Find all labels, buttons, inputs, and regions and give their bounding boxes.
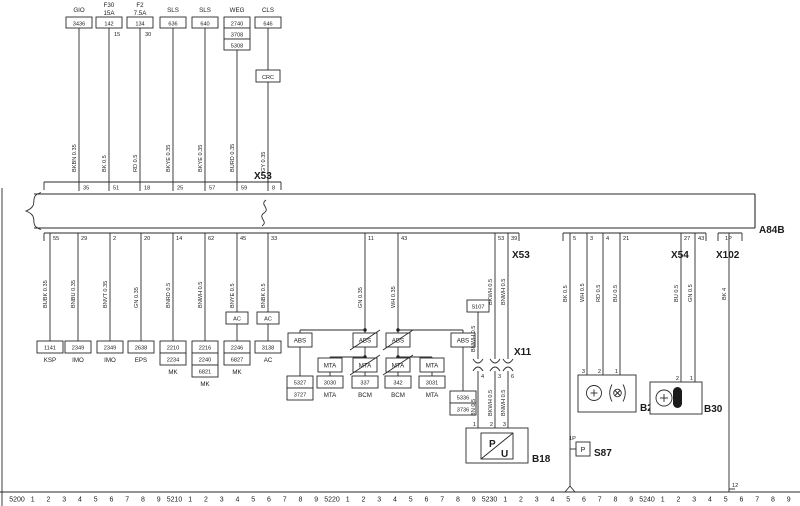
circuit-number: 1141 [44,346,56,352]
connector-x53-bottom: 55 29 2 20 14 62 45 33 11 43 53 39 X53 [44,233,530,261]
wire-label: BU 0.5 [613,285,619,302]
top-circuit-sls-2: SLS 640 BKYE 0.35 57 [192,7,218,192]
switch-symbol: P [581,447,586,454]
component-abbr: KSP [44,357,56,364]
x11-b18-section: BKWH 0.5 BNWH 0.5 S107 BNWH 0.5 X11 4 3 … [466,233,551,465]
component-abbr: BCM [358,392,372,399]
destination-label: ABS [457,338,469,345]
pin-number: 53 [498,236,504,242]
pin-number: 3 [590,236,593,242]
ruler-digit: 2 [47,497,51,504]
circuit-number: 3736 [457,408,469,414]
wire-label: BNRD 0.5 [166,283,172,308]
ruler-digit: 6 [582,497,586,504]
ruler-digit: 5 [251,497,255,504]
pin-number: 1P [569,436,576,442]
bus-break-squiggle [262,200,267,226]
left-circuit-mk-2: BNWH 0.5 2216 2240 6821 MK [192,233,218,388]
pressure-symbol: P [489,439,496,450]
circuit-number: 2240 [199,358,211,364]
bus-break-brace [26,193,41,230]
circuit-number: 3138 [262,346,274,352]
circuit-number: 2216 [199,346,211,352]
ruler-digit: 2 [677,497,681,504]
circuit-number: 3030 [324,381,336,387]
pin-number: 21 [623,236,629,242]
left-circuit-imo-2: BNVT 0.35 2349 IMO [97,233,123,364]
wire-label: BNWH 0.5 [198,282,204,308]
wire-label: BURD 0.35 [230,144,236,172]
pass-through-label: ABS [392,338,404,345]
connector-label: X54 [671,250,689,261]
wire-label: BKYE 0.35 [166,145,172,172]
top-circuit-cls: CLS 646 CRC GY 0.35 8 [255,7,281,192]
wire-label: BNWH 0.5 [471,326,477,352]
component-abbr: BCM [391,392,405,399]
wire-label: GN 0.5 [688,284,694,302]
pin-number: 14 [176,236,182,242]
s87-circuit: BK 0.5 1P P S87 [563,233,612,492]
component-abbr: MK [168,369,178,376]
wire-label: BNBU 0.35 [71,280,77,308]
left-circuit-ac: BNBK 0.5 AC 3138 AC [255,233,281,364]
top-circuit-sls-1: SLS 636 BKYE 0.35 25 [160,7,186,192]
pin-number: 18 [144,186,150,192]
x102-circuit: BK 4 12 [722,233,738,492]
pin-number: 43 [401,236,407,242]
pin-number: 2 [490,422,493,428]
wiring-diagram-page: GIO 3436 BKBN 0.35 35 F30 15A 142 15 BK … [0,0,800,506]
left-circuit-imo-1: BNBU 0.35 2349 IMO [65,233,91,364]
pin-number: 3 [503,422,506,428]
wire-label: BNBK 0.5 [261,283,267,308]
fuse-name: F30 [104,2,115,9]
ruler-digit: 6 [740,497,744,504]
pin-number: 33 [271,236,277,242]
ruler-digit: 5 [724,497,728,504]
circuit-number: 6827 [231,358,243,364]
wire-label: BNWH 0.5 [501,390,507,416]
pass-through-label: MTA [392,363,405,370]
bus-label: A84B [759,225,785,236]
wire-label: BK 4 [722,288,728,300]
ruler-digit: 7 [755,497,759,504]
ruler-digit: 1 [188,497,192,504]
ruler-major: 5240 [639,497,655,504]
ruler-digit: 2 [204,497,208,504]
destination-label: MTA [426,363,439,370]
component-abbr: EPS [135,357,147,364]
circuit-number: 6821 [199,370,211,376]
ruler-digit: 9 [157,497,161,504]
ruler-digit: 8 [614,497,618,504]
connector-plug-icon [473,367,483,371]
ruler-digit: 5 [566,497,570,504]
wire-end-serif [570,486,575,492]
ruler-major: 5220 [324,497,340,504]
pin-number: 62 [208,236,214,242]
wire-label: WH 0.5 [580,283,586,302]
abs-cluster-left: GN 0.35 ABS 5327 3727 ABS MTA 3030 MTA M… [287,233,380,400]
pin-number: 5 [573,236,576,242]
ruler-digit: 4 [393,497,397,504]
ruler-digit: 8 [141,497,145,504]
ruler-digit: 9 [629,497,633,504]
wire-label: GY 0.35 [261,152,267,172]
circuit-number: 5327 [294,381,306,387]
left-circuit-eps: GN 0.35 2638 EPS [128,233,154,364]
ruler-digit: 1 [346,497,350,504]
component-abbr: MK [232,369,242,376]
pin-number: 57 [209,186,215,192]
component-label: B30 [704,404,723,415]
pin-number: 6 [511,374,514,380]
connector-plug-icon [503,367,513,371]
circuit-number: 142 [104,22,113,28]
circuit-name: WEG [230,7,245,14]
connector-label: X53 [512,250,530,261]
connector-x54: 5 3 4 21 27 43 X54 [563,233,706,261]
inline-box-label: AC [233,317,241,323]
ruler-digit: 1 [503,497,507,504]
grid-ruler: 5200 1 2 3 4 5 6 7 8 9 5210 1 2 3 4 5 6 … [0,492,800,504]
wiring-diagram-canvas: GIO 3436 BKBN 0.35 35 F30 15A 142 15 BK … [0,0,800,506]
circuit-number: 134 [135,22,144,28]
fuse-rating: 15A [103,10,115,17]
circuit-number: 646 [263,22,272,28]
fuse-rating: 7.5A [134,10,148,17]
wire-label: BN 0.5 [471,399,477,416]
ruler-digit: 3 [62,497,66,504]
pin-number: 2 [676,376,679,382]
ruler-digit: 7 [440,497,444,504]
wire-label: BKWH 0.5 [488,390,494,416]
pin-number: 11 [368,236,374,242]
inline-box-label: CRC [262,75,274,81]
wire-label: BKYE 0.35 [198,145,204,172]
connector-socket-icon [503,359,513,363]
pin-number: 4 [606,236,609,242]
pass-through-label: ABS [359,338,371,345]
ruler-major: 5230 [482,497,498,504]
voltage-symbol: U [501,449,508,460]
destination-label: MTA [324,363,337,370]
connector-label: X53 [254,171,272,182]
ruler-digit: 3 [535,497,539,504]
wire-label: BNYE 0.5 [230,283,236,308]
component-abbr: AC [264,357,273,364]
circuit-number: 3727 [294,393,306,399]
circuit-number: 5336 [457,396,469,402]
ruler-digit: 7 [598,497,602,504]
terminal-number: 15 [114,32,120,38]
ruler-digit: 8 [771,497,775,504]
b28-circuit: WH 0.5 RD 0.5 BU 0.5 3 2 1 B28 [578,233,659,414]
ruler-digit: 9 [472,497,476,504]
circuit-number: 3031 [426,381,438,387]
left-circuit-mk-3: BNYE 0.5 AC 2246 6827 MK [224,233,250,376]
connector-label: X11 [514,347,532,358]
ruler-digit: 1 [661,497,665,504]
top-circuit-weg: WEG 2740 3708 5308 BURD 0.35 59 [224,7,250,192]
ruler-digit: 4 [78,497,82,504]
circuit-number: 2349 [72,346,84,352]
ruler-digit: 4 [236,497,240,504]
pass-through-label: MTA [359,363,372,370]
pin-number: 45 [240,236,246,242]
component-abbr: IMO [104,357,116,364]
sensor-element-icon [673,387,682,408]
component-abbr: MK [200,381,210,388]
pin-number: 1 [690,376,693,382]
component-abbr: MTA [324,392,337,399]
wire-label: BK 0.5 [102,155,108,172]
circuit-number: 2234 [167,358,179,364]
pin-number: 20 [144,236,150,242]
top-circuit-f30: F30 15A 142 15 BK 0.5 51 [96,2,122,192]
pin-number: 39 [511,236,517,242]
circuit-name: SLS [199,7,211,14]
left-circuit-mk-1: BNRD 0.5 2210 2234 MK [160,233,186,376]
ruler-digit: 8 [456,497,460,504]
pin-number: 59 [241,186,247,192]
pin-number: 3 [582,369,585,375]
pin-number: 2 [598,369,601,375]
ruler-digit: 3 [220,497,224,504]
ruler-digit: 4 [551,497,555,504]
component-label: B18 [532,454,551,465]
circuit-number: 2246 [231,346,243,352]
splice-label: S107 [471,305,484,311]
ruler-digit: 5 [409,497,413,504]
connector-label: X102 [716,250,740,261]
pin-number: 29 [81,236,87,242]
ruler-digit: 8 [299,497,303,504]
pin-number: 8 [272,186,275,192]
terminal-number: 30 [145,32,151,38]
ruler-digit: 6 [267,497,271,504]
circuit-name: SLS [167,7,179,14]
pin-number: 1 [615,369,618,375]
ruler-digit: 6 [425,497,429,504]
pin-number: 55 [53,236,59,242]
circuit-number: 640 [200,22,209,28]
ruler-digit: 4 [708,497,712,504]
circuit-number: 3708 [231,33,243,39]
pin-number: 4 [481,374,484,380]
wire-label: BKBN 0.35 [72,144,78,172]
wire-label: BU 0.5 [674,285,680,302]
wire-label: BNWH 0.5 [501,279,507,305]
circuit-number: 5308 [231,44,243,50]
grid-reference: 12 [732,483,738,489]
component-label: S87 [594,448,612,459]
wire-label: RD 0.5 [133,155,139,172]
wire-label: BK 0.5 [563,285,569,302]
pin-number: 3 [498,374,501,380]
circuit-name: CLS [262,7,274,14]
wire-label: BNVT 0.35 [103,281,109,308]
pin-number: 1 [473,422,476,428]
circuit-number: 342 [393,381,402,387]
top-circuit-gio: GIO 3436 BKBN 0.35 35 [66,7,92,192]
destination-label: ABS [294,338,306,345]
connector-socket-icon [490,359,500,363]
ruler-digit: 9 [314,497,318,504]
ruler-major: 5200 [9,497,25,504]
fuse-name: F2 [136,2,144,9]
pin-number: 27 [684,236,690,242]
circuit-number: 3436 [73,22,85,28]
ruler-digit: 7 [125,497,129,504]
pin-number: 35 [83,186,89,192]
left-circuit-ksp: BUBK 0.35 1141 KSP [37,233,63,364]
circuit-number: 2349 [104,346,116,352]
pin-number: 51 [113,186,119,192]
wire-label: GN 0.35 [358,287,364,308]
pin-number: 2 [113,236,116,242]
circuit-number: 636 [168,22,177,28]
ruler-digit: 7 [283,497,287,504]
component-abbr: IMO [72,357,84,364]
ruler-digit: 5 [94,497,98,504]
top-circuit-f2: F2 7.5A 134 30 RD 0.5 18 [127,2,153,192]
wire-label: BUBK 0.35 [43,280,49,308]
ruler-digit: 3 [377,497,381,504]
wire-label: GN 0.35 [134,287,140,308]
component-abbr: MTA [426,392,439,399]
ruler-digit: 2 [519,497,523,504]
ruler-digit: 6 [110,497,114,504]
connector-socket-icon [473,359,483,363]
connector-plug-icon [490,367,500,371]
inline-box-label: AC [264,317,272,323]
ruler-digit: 3 [692,497,696,504]
wire-label: RD 0.5 [596,285,602,302]
ruler-digit: 1 [31,497,35,504]
circuit-number: 2740 [231,22,243,28]
pin-number: 43 [698,236,704,242]
circuit-name: GIO [73,7,85,14]
ruler-major: 5210 [167,497,183,504]
abs-cluster-right: WH 0.35 ABS 5336 3736 ABS MTA 3031 MTA M… [383,233,476,415]
ruler-digit: 9 [787,497,791,504]
wire-label: WH 0.35 [391,286,397,308]
ruler-digit: 2 [362,497,366,504]
pin-number: 25 [177,186,183,192]
circuit-number: 337 [360,381,369,387]
circuit-number: 2210 [167,346,179,352]
bus-a84b: A84B [26,193,785,237]
circuit-number: 2638 [135,346,147,352]
wire-end-serif [565,486,570,492]
